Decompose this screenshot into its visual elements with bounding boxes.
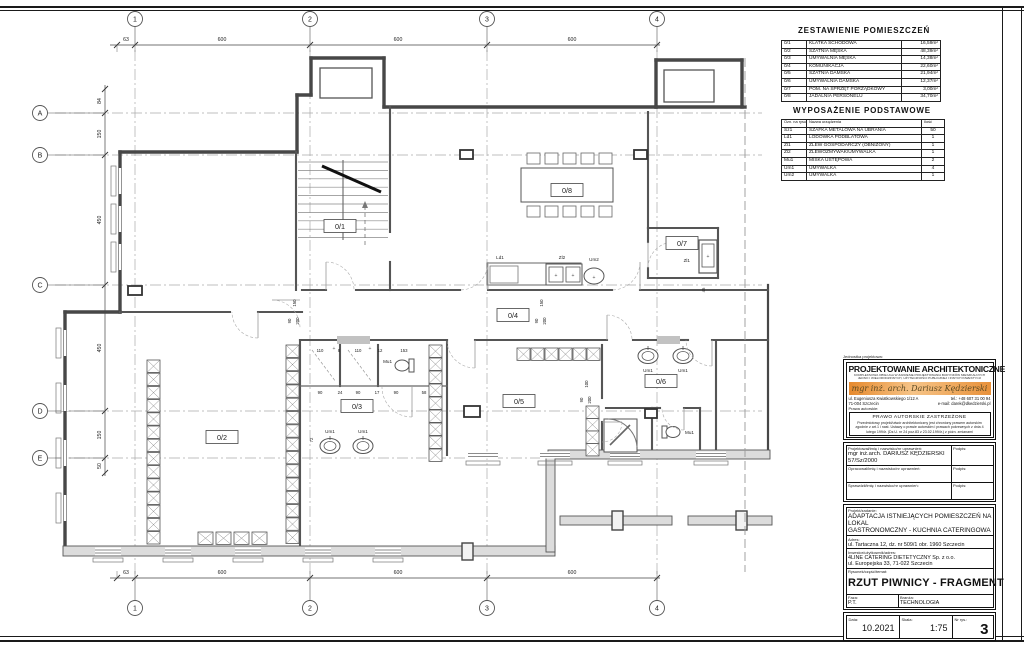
counter: +++ bbox=[487, 263, 604, 285]
svg-text:90: 90 bbox=[287, 318, 292, 323]
equipment-cell: 1 bbox=[922, 150, 945, 158]
equipment-cell: Um2 bbox=[782, 173, 807, 181]
room-cell: 0/5 bbox=[782, 71, 807, 79]
room-cell: 3,00m² bbox=[902, 86, 941, 94]
svg-text:D: D bbox=[37, 409, 42, 416]
equipment-cell: 1 bbox=[922, 142, 945, 150]
svg-text:84: 84 bbox=[97, 98, 103, 104]
signature-row: Sprawdził/imię i nazwisko/nr uprawnień:P… bbox=[847, 483, 993, 499]
equipment-cell: ZLEW GOSPODARCZY (OBNIŻONY) bbox=[807, 142, 922, 150]
date-cell: Data: 10.2021 bbox=[847, 616, 900, 638]
signature-row: Projektował/imię i nazwisko/nr uprawnień… bbox=[847, 446, 993, 466]
svg-text:0/2: 0/2 bbox=[217, 433, 227, 442]
svg-text:4: 4 bbox=[655, 606, 659, 613]
svg-text:Mu1: Mu1 bbox=[685, 430, 694, 435]
svg-text:90: 90 bbox=[356, 390, 361, 395]
svg-text:B: B bbox=[38, 153, 43, 160]
equipment-table-title: WYPOSAŻENIE PODSTAWOWE bbox=[793, 106, 931, 115]
copyright-label: Prawa autorskie: bbox=[849, 406, 991, 411]
equipment-cell: Ld1 bbox=[782, 135, 807, 143]
equipment-header: Ilość bbox=[922, 120, 945, 128]
scale-value: 1:75 bbox=[902, 622, 950, 633]
room-cell: 0/7 bbox=[782, 86, 807, 94]
room-row: 0/8JADALNIA PERSONELU34,70m² bbox=[782, 94, 941, 102]
svg-text:C: C bbox=[37, 283, 42, 290]
svg-text:450: 450 bbox=[97, 344, 103, 353]
svg-text:0/4: 0/4 bbox=[508, 311, 518, 320]
equipment-row: Zl1ZLEW GOSPODARCZY (OBNIŻONY)1 bbox=[782, 142, 945, 150]
svg-text:150: 150 bbox=[97, 431, 103, 440]
room-cell: JADALNIA PERSONELU bbox=[807, 94, 902, 102]
room-cell: 0/3 bbox=[782, 56, 807, 64]
svg-text:+: + bbox=[333, 346, 336, 352]
room-cell: 48,39m² bbox=[902, 48, 941, 56]
equipment-cell: 1 bbox=[922, 173, 945, 181]
svg-text:+: + bbox=[593, 275, 596, 281]
frame-right-outer bbox=[1021, 6, 1022, 642]
room-labels: 0/10/20/30/40/50/60/70/8 bbox=[206, 184, 698, 444]
room-cell: UMYWALNIA DAMSKA bbox=[807, 78, 902, 86]
svg-text:0/1: 0/1 bbox=[335, 222, 345, 231]
rooms-table: 0/1KLATKA SCHODOWA16,59m²0/2SZATNIA MĘSK… bbox=[781, 40, 941, 102]
room-row: 0/5SZATNIA DAMSKA21,94m² bbox=[782, 71, 941, 79]
date-value: 10.2021 bbox=[849, 622, 897, 633]
equipment-cell: Zl1 bbox=[782, 142, 807, 150]
svg-text:110: 110 bbox=[317, 348, 324, 353]
drawing-title-section: Rysunek/część/temat: RZUT PIWNICY - FRAG… bbox=[847, 569, 993, 595]
svg-text:0/3: 0/3 bbox=[352, 402, 362, 411]
room-cell: 22,60m² bbox=[902, 63, 941, 71]
equipment-cell: Mu1 bbox=[782, 157, 807, 165]
project-section: Projekt/zadanie: ADAPTACJA ISTNIEJĄCYCH … bbox=[847, 508, 993, 537]
svg-text:600: 600 bbox=[218, 37, 227, 43]
sheet-number: 3 bbox=[955, 622, 991, 637]
rooms-table-title: ZESTAWIENIE POMIESZCZEŃ bbox=[798, 26, 930, 35]
svg-text:600: 600 bbox=[568, 37, 577, 43]
room-cell: 14,38m² bbox=[902, 56, 941, 64]
svg-text:Um1: Um1 bbox=[678, 368, 688, 373]
equipment-cell: ZLEWOZMYWAK/UMYWALKA bbox=[807, 150, 922, 158]
svg-text:90: 90 bbox=[579, 397, 584, 402]
svg-text:200: 200 bbox=[587, 396, 592, 404]
room-cell: POM. NA SPRZĘT PORZĄDKOWY bbox=[807, 86, 902, 94]
sink-zl1: + bbox=[699, 240, 717, 273]
frame-right-inner bbox=[1002, 6, 1003, 642]
svg-text:12: 12 bbox=[378, 348, 383, 353]
sheet-number-cell: Nr rys.: 3 bbox=[953, 616, 993, 638]
svg-text:3: 3 bbox=[485, 17, 489, 24]
svg-text:0/8: 0/8 bbox=[562, 186, 572, 195]
svg-text:0/6: 0/6 bbox=[656, 377, 666, 386]
equipment-row: Zl2ZLEWOZMYWAK/UMYWALKA1 bbox=[782, 150, 945, 158]
svg-text:72: 72 bbox=[309, 437, 314, 442]
walls bbox=[63, 58, 772, 560]
equipment-header: Ozn. na rysunku bbox=[782, 120, 807, 128]
svg-text:100: 100 bbox=[584, 380, 589, 388]
svg-text:E: E bbox=[38, 456, 43, 463]
svg-text:450: 450 bbox=[97, 216, 103, 225]
designer-contact: tel.: +48 607 31 00 94 e-mail: darek@dke… bbox=[938, 396, 991, 406]
room-cell: KLATKA SCHODOWA bbox=[807, 41, 902, 49]
svg-text:2: 2 bbox=[308, 606, 312, 613]
room-cell: SZATNIA MĘSKA bbox=[807, 48, 902, 56]
svg-text:Um1: Um1 bbox=[325, 429, 335, 434]
phase-branch-row: Faza: P.T. Branża: TECHNOLOGIA bbox=[847, 595, 993, 607]
equipment-cell: Um1 bbox=[782, 165, 807, 173]
svg-text:2: 2 bbox=[308, 17, 312, 24]
room-row: 0/6UMYWALNIA DAMSKA12,37m² bbox=[782, 78, 941, 86]
room-cell: UMYWALNIA MĘSKA bbox=[807, 56, 902, 64]
svg-text:63: 63 bbox=[123, 37, 129, 43]
signature-row: Opracował/imię i nazwisko/nr uprawnień:P… bbox=[847, 466, 993, 483]
svg-text:Um1: Um1 bbox=[358, 429, 368, 434]
svg-text:150: 150 bbox=[97, 130, 103, 139]
signatures-box: Projektował/imię i nazwisko/nr uprawnień… bbox=[843, 442, 996, 502]
svg-text:153: 153 bbox=[400, 348, 408, 353]
scale-cell: Skala: 1:75 bbox=[900, 616, 953, 638]
equipment-cell: 4 bbox=[922, 165, 945, 173]
equipment-row: Sz1SZAFKA METALOWA NA UBRANIA50 bbox=[782, 127, 945, 135]
equipment-cell: 2 bbox=[922, 157, 945, 165]
footer-box: Data: 10.2021 Skala: 1:75 Nr rys.: 3 bbox=[843, 612, 996, 641]
room-cell: 21,94m² bbox=[902, 71, 941, 79]
room-cell: SZATNIA DAMSKA bbox=[807, 71, 902, 79]
svg-text:Um1: Um1 bbox=[643, 368, 653, 373]
svg-text:Zl2: Zl2 bbox=[559, 255, 566, 260]
svg-text:90: 90 bbox=[318, 390, 323, 395]
copyright-box: PRAWO AUTORSKIE ZASTRZEŻONE Przedmiotowy… bbox=[849, 412, 991, 436]
svg-text:0/5: 0/5 bbox=[514, 397, 524, 406]
designer-name: PROJEKTOWANIE ARCHITEKTONICZNE bbox=[849, 364, 991, 374]
room-row: 0/3UMYWALNIA MĘSKA14,38m² bbox=[782, 56, 941, 64]
room-cell: 16,59m² bbox=[902, 41, 941, 49]
room-cell: 34,70m² bbox=[902, 94, 941, 102]
svg-text:Ld1: Ld1 bbox=[496, 255, 504, 260]
svg-text:90: 90 bbox=[394, 390, 399, 395]
shower bbox=[604, 419, 637, 452]
svg-text:+: + bbox=[572, 273, 575, 279]
svg-text:50: 50 bbox=[97, 463, 103, 469]
equipment-table: Ozn. na rysunkuNazwa urządzeniaIlość Sz1… bbox=[781, 119, 945, 181]
room-cell: KOMUNIKACJA bbox=[807, 63, 902, 71]
interior-dimensions: 1108110121539024901790581509020015090200… bbox=[287, 287, 706, 442]
svg-text:600: 600 bbox=[394, 37, 403, 43]
svg-text:0/7: 0/7 bbox=[677, 239, 687, 248]
room-cell: 0/6 bbox=[782, 78, 807, 86]
investor-section: Inwestor/użytkownik/adres: 4LINE CATERIN… bbox=[847, 549, 993, 568]
room-row: 0/4KOMUNIKACJA22,60m² bbox=[782, 63, 941, 71]
dimension-lines: 63600600600636006006008415045045015050 bbox=[97, 37, 660, 581]
svg-text:600: 600 bbox=[218, 570, 227, 576]
room-cell: 12,37m² bbox=[902, 78, 941, 86]
floor-plan: 6360060060063600600600841504504501505011… bbox=[0, 0, 780, 646]
room-row: 0/1KLATKA SCHODOWA16,59m² bbox=[782, 41, 941, 49]
svg-text:150: 150 bbox=[539, 299, 544, 307]
project-box: Projekt/zadanie: ADAPTACJA ISTNIEJĄCYCH … bbox=[843, 504, 996, 610]
equipment-row: Um2UMYWALKA1 bbox=[782, 173, 945, 181]
svg-text:110: 110 bbox=[355, 348, 362, 353]
room-row: 0/7POM. NA SPRZĘT PORZĄDKOWY3,00m² bbox=[782, 86, 941, 94]
svg-text:45: 45 bbox=[701, 287, 706, 292]
svg-text:Um2: Um2 bbox=[589, 257, 599, 262]
svg-text:4: 4 bbox=[655, 17, 659, 24]
svg-text:Mu1: Mu1 bbox=[383, 359, 392, 364]
drawing-sheet: { "plan": { "grid_cols": ["1","2","3","4… bbox=[0, 0, 1024, 646]
lockers bbox=[147, 345, 600, 544]
svg-text:Zl1: Zl1 bbox=[684, 258, 691, 263]
svg-text:600: 600 bbox=[568, 570, 577, 576]
svg-text:200: 200 bbox=[295, 317, 300, 325]
svg-text:63: 63 bbox=[123, 570, 129, 576]
room-cell: 0/8 bbox=[782, 94, 807, 102]
svg-text:58: 58 bbox=[422, 390, 427, 395]
equipment-header: Nazwa urządzenia bbox=[807, 120, 922, 128]
svg-text:24: 24 bbox=[338, 390, 343, 395]
equipment-cell: 50 bbox=[922, 127, 945, 135]
equipment-cell: SZAFKA METALOWA NA UBRANIA bbox=[807, 127, 922, 135]
equipment-row: Um1UMYWALKA4 bbox=[782, 165, 945, 173]
equipment-cell: LODÓWKA PODBLATOWA bbox=[807, 135, 922, 143]
svg-text:150: 150 bbox=[292, 299, 297, 307]
svg-text:+: + bbox=[555, 273, 558, 279]
equipment-row: Ld1LODÓWKA PODBLATOWA1 bbox=[782, 135, 945, 143]
room-cell: 0/4 bbox=[782, 63, 807, 71]
equipment-cell: MISKA USTĘPOWA bbox=[807, 157, 922, 165]
equipment-cell: 1 bbox=[922, 135, 945, 143]
room-cell: 0/2 bbox=[782, 48, 807, 56]
equipment-cell: UMYWALKA bbox=[807, 173, 922, 181]
room-cell: 0/1 bbox=[782, 41, 807, 49]
svg-text:17: 17 bbox=[375, 390, 380, 395]
svg-text:3: 3 bbox=[485, 606, 489, 613]
svg-text:+: + bbox=[707, 254, 710, 260]
svg-text:90: 90 bbox=[534, 318, 539, 323]
equipment-cell: Sz1 bbox=[782, 127, 807, 135]
equipment-cell: Zl2 bbox=[782, 150, 807, 158]
designer-box: PROJEKTOWANIE ARCHITEKTONICZNE KOMPLEKSO… bbox=[843, 359, 996, 440]
equipment-cell: UMYWALKA bbox=[807, 165, 922, 173]
svg-text:+: + bbox=[369, 346, 372, 352]
svg-text:1: 1 bbox=[133, 606, 137, 613]
designer-subtitle-2: JEDNO I WIELORODZINNYCH, UŻYTECZNOŚCI PU… bbox=[849, 377, 991, 381]
room-row: 0/2SZATNIA MĘSKA48,39m² bbox=[782, 48, 941, 56]
svg-text:600: 600 bbox=[394, 570, 403, 576]
svg-text:1: 1 bbox=[133, 17, 137, 24]
title-block: Jednostka projektowa: PROJEKTOWANIE ARCH… bbox=[843, 354, 996, 643]
designer-address: ul. Eugeniusza Kwiatkowskiego 1/12 A 71-… bbox=[849, 396, 919, 406]
address-section: Adres: ul. Tartaczna 12, dz. nr 509/1 ob… bbox=[847, 536, 993, 549]
architect-stamp: mgr inż. arch. Dariusz Kędzierski bbox=[849, 382, 991, 395]
svg-text:A: A bbox=[38, 111, 43, 118]
drawing-title: RZUT PIWNICY - FRAGMENT bbox=[848, 574, 991, 593]
equipment-row: Mu1MISKA USTĘPOWA2 bbox=[782, 157, 945, 165]
svg-text:200: 200 bbox=[542, 317, 547, 325]
